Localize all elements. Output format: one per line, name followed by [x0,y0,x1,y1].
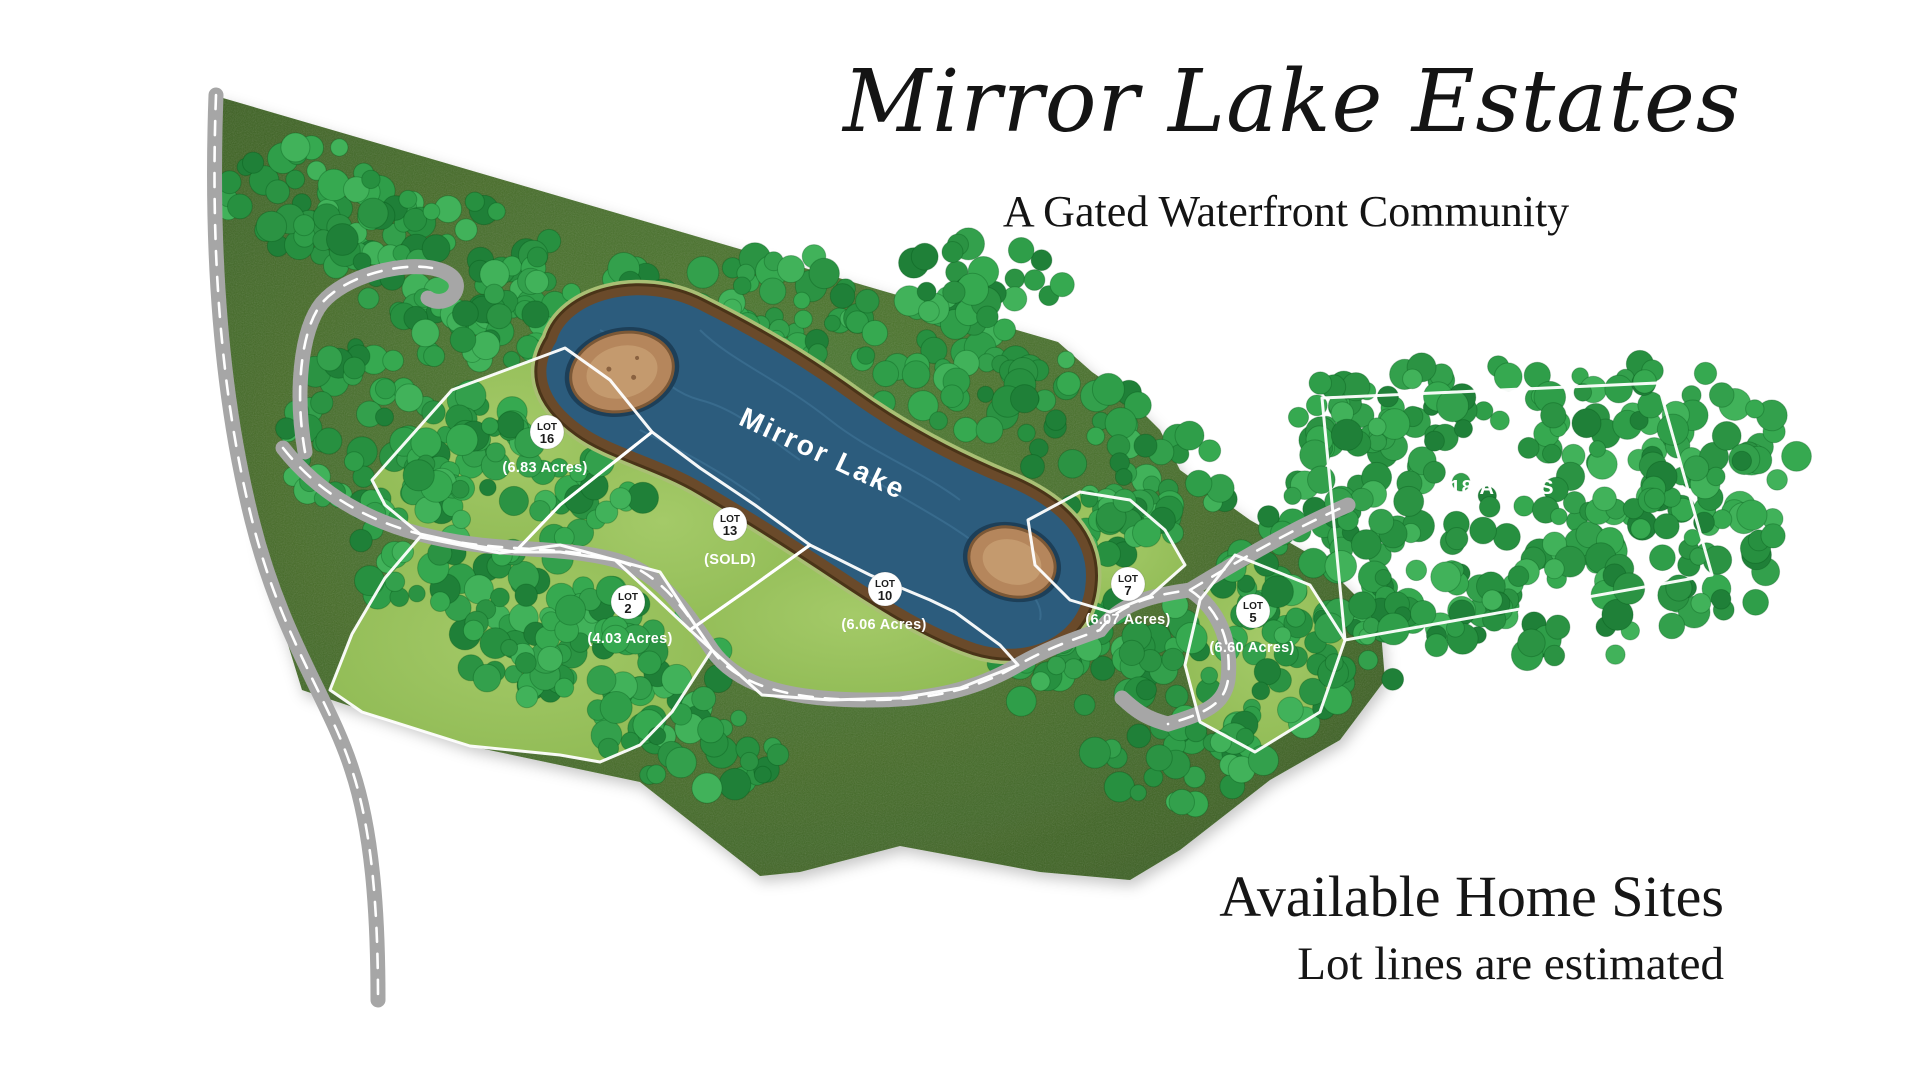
lot-acreage-5: (6.60 Acres) [1209,640,1294,656]
page-subtitle: A Gated Waterfront Community [1003,186,1569,237]
lot-acreage-2: (4.03 Acres) [587,631,672,647]
lot-acreage-10: (6.06 Acres) [841,617,926,633]
footer-lot-lines-estimated: Lot lines are estimated [1219,934,1724,994]
footer-note: Available Home Sites Lot lines are estim… [1219,860,1724,994]
lot-acreage-16: (6.83 Acres) [502,460,587,476]
svg-text:10: 10 [878,588,892,603]
parcel-18-acres-label: 18 ACRES [1449,477,1554,499]
svg-text:13: 13 [723,523,737,538]
svg-text:5: 5 [1249,610,1256,625]
page-title: Mirror Lake Estates [843,52,1741,152]
svg-text:7: 7 [1124,583,1131,598]
footer-available-home-sites: Available Home Sites [1219,860,1724,934]
svg-text:16: 16 [540,431,554,446]
lot-acreage-13: (SOLD) [704,552,756,568]
site-plan-page: Mirror Lake Estates A Gated Waterfront C… [0,0,1920,1080]
lot-acreage-7: (6.07 Acres) [1085,612,1170,628]
svg-text:2: 2 [624,601,631,616]
